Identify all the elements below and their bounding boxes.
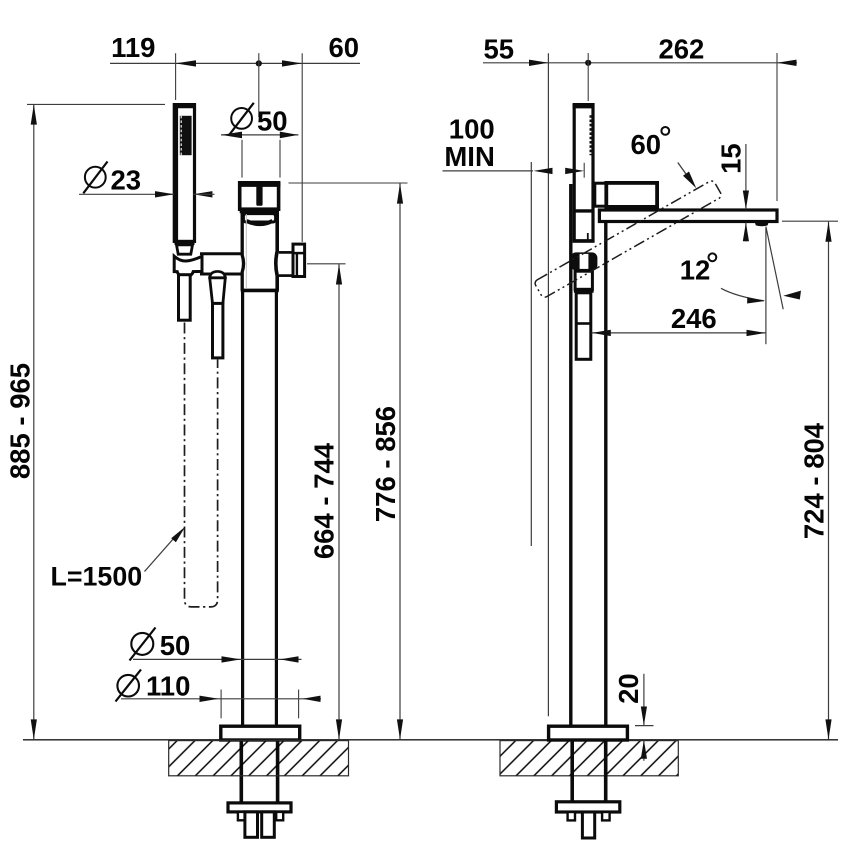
svg-text:L=1500: L=1500 bbox=[51, 561, 143, 591]
svg-text:55: 55 bbox=[484, 34, 515, 65]
svg-text:50: 50 bbox=[160, 630, 191, 661]
svg-text:12: 12 bbox=[680, 254, 711, 285]
svg-text:262: 262 bbox=[658, 34, 704, 65]
svg-text:664 - 744: 664 - 744 bbox=[308, 442, 339, 559]
svg-text:50: 50 bbox=[257, 105, 288, 136]
svg-text:60: 60 bbox=[329, 32, 360, 63]
svg-text:15: 15 bbox=[716, 143, 747, 174]
svg-text:724 - 804: 724 - 804 bbox=[798, 422, 829, 539]
svg-text:60: 60 bbox=[631, 129, 662, 160]
svg-text:885 - 965: 885 - 965 bbox=[4, 363, 35, 479]
svg-text:MIN: MIN bbox=[444, 141, 494, 172]
svg-text:100: 100 bbox=[449, 113, 495, 144]
svg-text:110: 110 bbox=[146, 670, 190, 701]
svg-text:20: 20 bbox=[613, 673, 644, 704]
svg-text:776 - 856: 776 - 856 bbox=[370, 406, 401, 522]
svg-text:119: 119 bbox=[111, 32, 155, 63]
svg-text:23: 23 bbox=[111, 165, 142, 196]
svg-text:246: 246 bbox=[671, 303, 717, 334]
